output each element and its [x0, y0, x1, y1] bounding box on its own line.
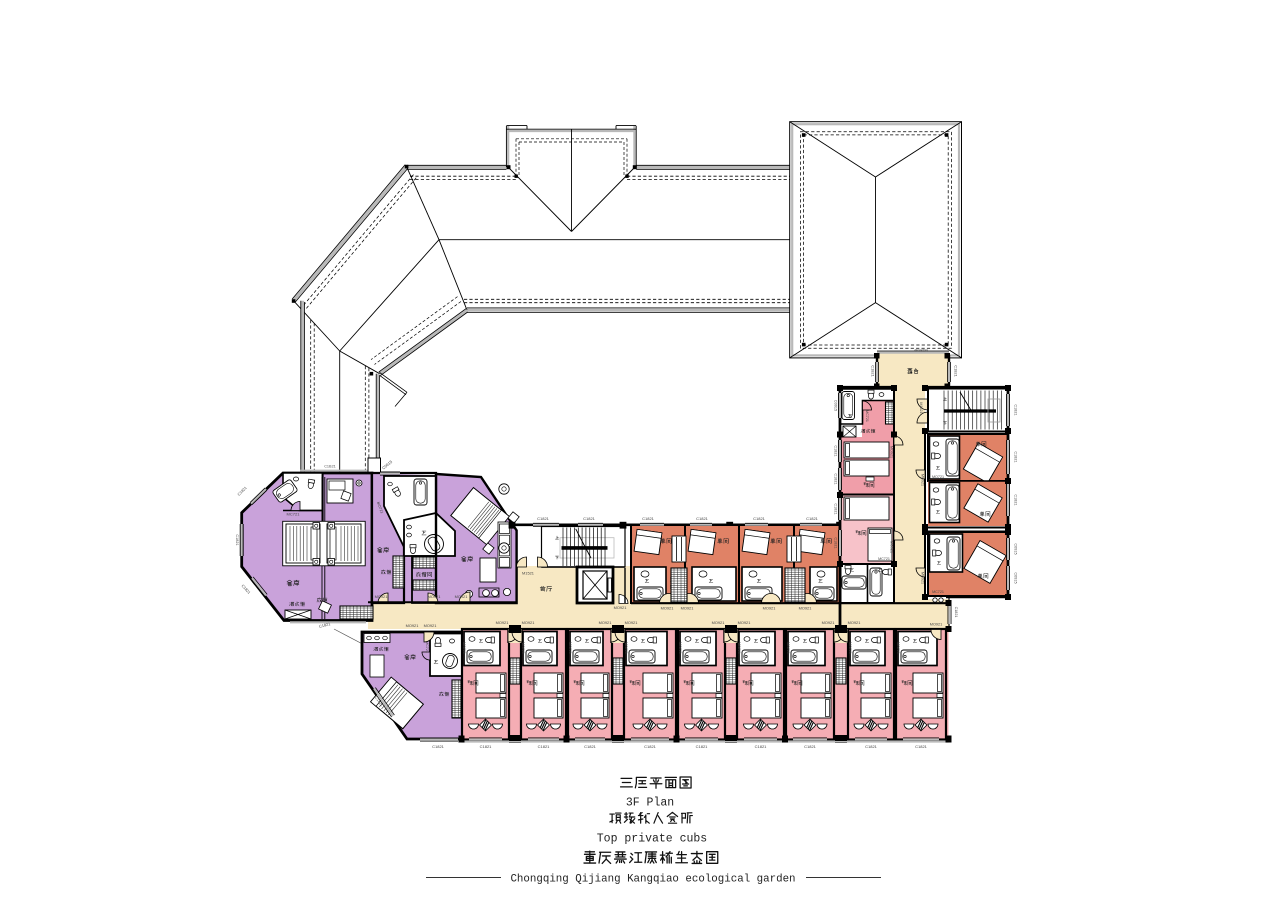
svg-text:MO921: MO921 — [681, 606, 694, 611]
svg-text:C1821: C1821 — [834, 537, 838, 548]
svg-text:MO921: MO921 — [522, 620, 535, 625]
svg-text:M1521: M1521 — [919, 402, 923, 413]
svg-text:MO921: MO921 — [406, 623, 419, 628]
svg-text:C1821: C1821 — [583, 516, 596, 521]
svg-text:MO721: MO721 — [568, 642, 572, 654]
svg-text:C1821: C1821 — [644, 744, 657, 749]
svg-text:C1821: C1821 — [865, 744, 878, 749]
svg-text:C1821: C1821 — [480, 744, 493, 749]
svg-text:MO721: MO721 — [932, 475, 944, 479]
svg-text:C1821: C1821 — [584, 744, 597, 749]
svg-text:C1821: C1821 — [834, 503, 838, 514]
svg-text:MO921: MO921 — [661, 606, 674, 611]
svg-text:C1821: C1821 — [432, 744, 445, 749]
svg-text:MO721: MO721 — [786, 642, 790, 654]
svg-text:MO721: MO721 — [737, 642, 741, 654]
svg-text:C1821: C1821 — [1014, 494, 1018, 505]
svg-text:M1521: M1521 — [522, 571, 534, 576]
svg-text:MO921: MO921 — [738, 620, 751, 625]
svg-text:C1821: C1821 — [235, 534, 239, 545]
svg-text:C1821: C1821 — [806, 516, 819, 521]
svg-text:C0915: C0915 — [834, 400, 838, 411]
svg-text:MO721: MO721 — [462, 642, 466, 654]
svg-text:MO721: MO721 — [678, 642, 682, 654]
svg-text:C1821: C1821 — [753, 516, 766, 521]
svg-text:MO921: MO921 — [375, 594, 388, 599]
svg-text:MO721: MO721 — [521, 642, 525, 654]
svg-text:MO721: MO721 — [896, 642, 900, 654]
svg-text:C1821: C1821 — [1014, 404, 1018, 415]
svg-text:C1821: C1821 — [642, 516, 655, 521]
svg-text:MO921: MO921 — [930, 623, 942, 627]
svg-text:MO921: MO921 — [599, 620, 612, 625]
svg-text:MO721: MO721 — [624, 642, 628, 654]
svg-text:MO921: MO921 — [712, 620, 725, 625]
svg-text:Top private cubs: Top private cubs — [597, 833, 707, 846]
svg-text:C1821: C1821 — [954, 607, 958, 618]
svg-text:MO921: MO921 — [921, 474, 925, 486]
svg-text:C0915: C0915 — [1014, 572, 1018, 583]
svg-text:MO921: MO921 — [625, 620, 638, 625]
svg-text:MC721: MC721 — [865, 410, 869, 422]
svg-text:C1821: C1821 — [804, 744, 817, 749]
svg-text:C1821: C1821 — [1014, 451, 1018, 462]
svg-text:C1821: C1821 — [696, 744, 709, 749]
svg-text:C1821: C1821 — [755, 744, 768, 749]
svg-text:MO921: MO921 — [921, 572, 925, 584]
svg-text:C1821: C1821 — [954, 365, 959, 376]
svg-text:MO921: MO921 — [799, 606, 812, 611]
svg-text:MO921: MO921 — [455, 594, 468, 599]
svg-text:C1821: C1821 — [696, 516, 709, 521]
svg-text:MO921: MO921 — [424, 623, 437, 628]
svg-text:C1821: C1821 — [537, 516, 550, 521]
svg-text:C1B21: C1B21 — [324, 465, 336, 469]
svg-text:MO921: MO921 — [848, 620, 861, 625]
svg-text:Chongqing Qijiang Kangqiao eco: Chongqing Qijiang Kangqiao ecological ga… — [510, 874, 795, 886]
svg-text:MO921: MO921 — [890, 541, 894, 553]
svg-text:MO921: MO921 — [822, 620, 835, 625]
svg-text:MC721: MC721 — [878, 557, 890, 561]
svg-text:MO921: MO921 — [763, 606, 776, 611]
svg-text:C1821: C1821 — [538, 744, 551, 749]
svg-text:MO921: MO921 — [890, 446, 894, 458]
svg-text:MO921: MO921 — [428, 594, 441, 599]
svg-text:MC721: MC721 — [425, 641, 429, 653]
svg-text:C1821: C1821 — [834, 445, 838, 456]
svg-text:MO921: MO921 — [496, 620, 509, 625]
svg-text:C0915: C0915 — [1014, 543, 1018, 554]
svg-text:C1821: C1821 — [871, 365, 876, 376]
svg-text:3F Plan: 3F Plan — [626, 797, 674, 810]
svg-text:MO721: MO721 — [848, 642, 852, 654]
svg-text:MC721: MC721 — [932, 590, 944, 594]
svg-text:MO921: MO921 — [614, 605, 627, 610]
svg-text:C1821: C1821 — [834, 473, 838, 484]
svg-text:MC721: MC721 — [287, 512, 301, 517]
svg-text:C1821: C1821 — [915, 744, 928, 749]
